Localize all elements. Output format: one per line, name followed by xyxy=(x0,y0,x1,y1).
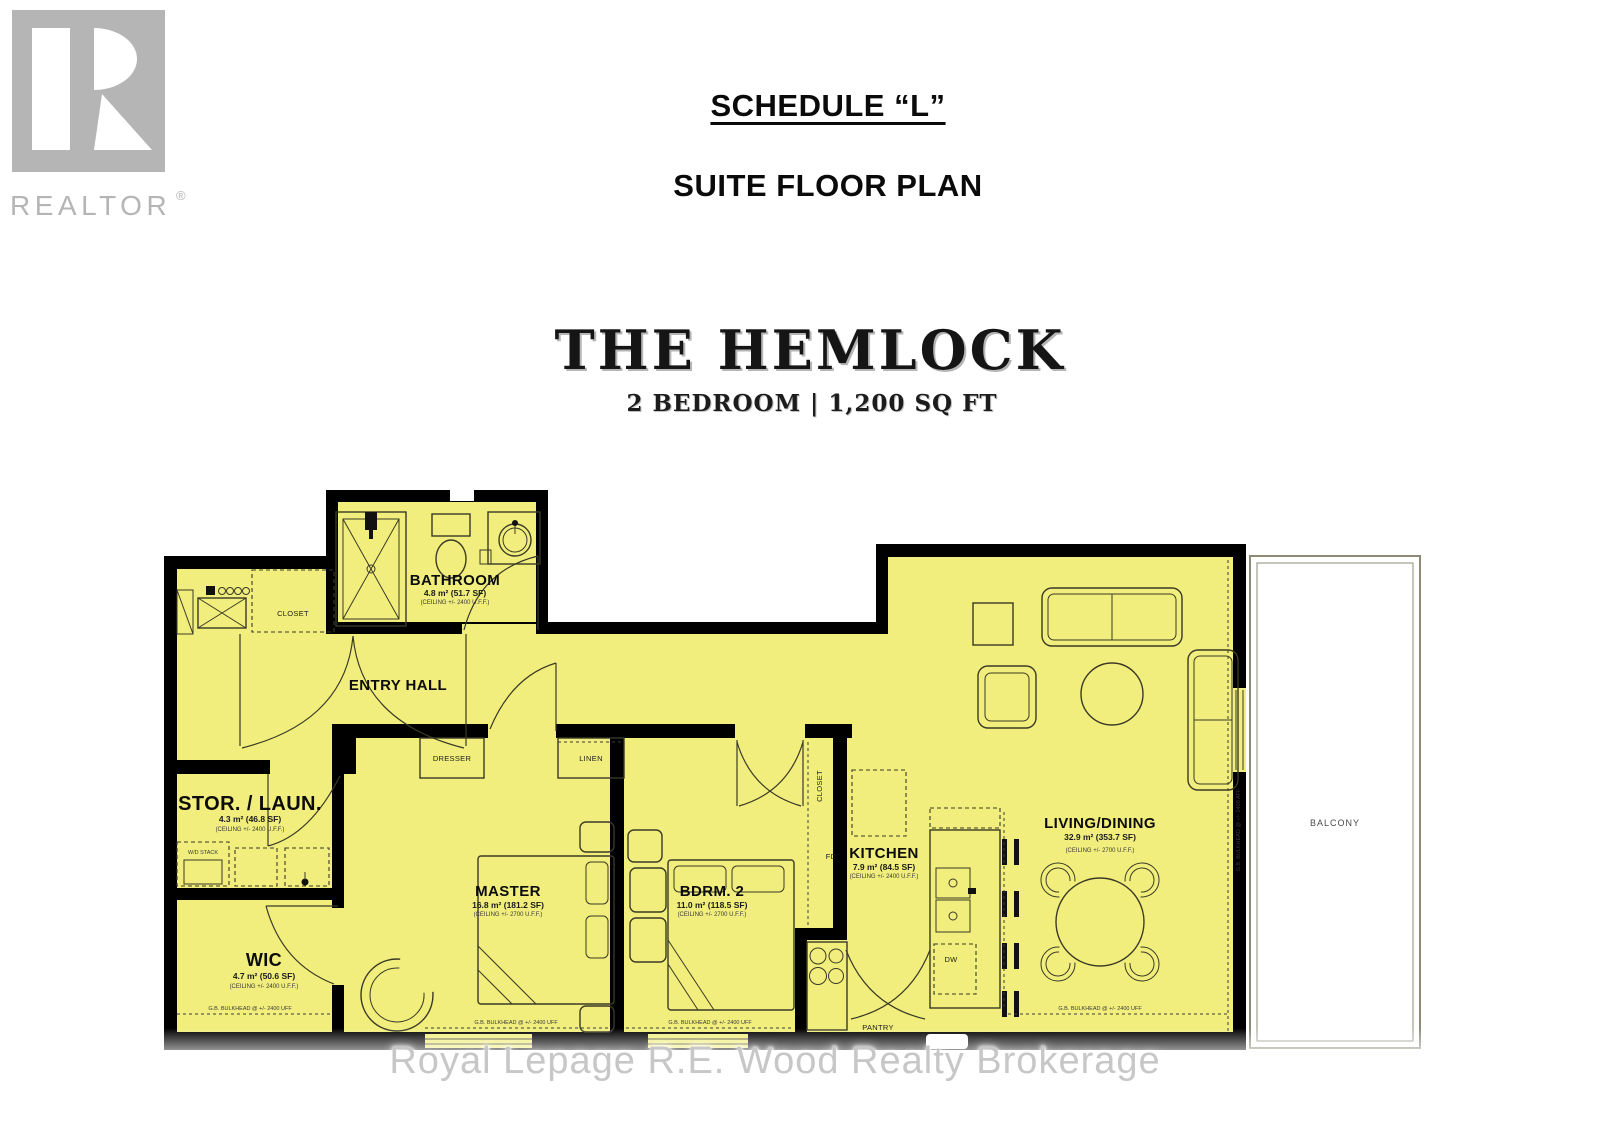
floor-plan: BALCONY xyxy=(0,0,1600,1136)
wall xyxy=(876,544,1246,557)
bulkhead-note: G.B. BULKHEAD @ +/- 2400 UFF xyxy=(668,1020,752,1026)
room-area: 32.9 m² (353.7 SF) xyxy=(1064,832,1136,842)
bulkhead-note-vertical: G.B. BULKHEAD @ +/- 2400 AFF xyxy=(1236,788,1242,871)
room-area: 7.9 m² (84.5 SF) xyxy=(853,862,916,872)
balcony-door-opening xyxy=(1233,688,1246,772)
room-ceiling-note: (CEILING +/- 2700 U.F.F.) xyxy=(1066,848,1135,854)
room-area: 4.3 m² (46.8 SF) xyxy=(219,814,282,824)
fridge-label: FD xyxy=(826,852,837,861)
faucet-icon xyxy=(968,888,976,894)
room-ceiling-note: (CEILING +/- 2700 U.F.F.) xyxy=(678,912,747,918)
room-label-kitchen: KITCHEN 7.9 m² (84.5 SF) (CEILING +/- 24… xyxy=(849,845,918,880)
brokerage-watermark: Royal Lepage R.E. Wood Realty Brokerage xyxy=(389,1040,1160,1083)
faucet-icon xyxy=(512,520,518,526)
room-area: 16.8 m² (181.2 SF) xyxy=(472,900,544,910)
vent-notch xyxy=(450,490,474,501)
wd-stack-label: W/D STACK xyxy=(188,850,218,856)
room-label: BATHROOM xyxy=(410,572,500,589)
door-opening xyxy=(462,624,536,634)
room-label: WIC xyxy=(246,950,282,970)
wall xyxy=(833,738,847,940)
room-label: STOR. / LAUN. xyxy=(178,793,322,815)
room-ceiling-note: (CEILING +/- 2400 U.F.F.) xyxy=(216,827,285,833)
wall xyxy=(876,544,888,634)
room-ceiling-note: (CEILING +/- 2400 U.F.F.) xyxy=(230,984,299,990)
entry-closet-label: CLOSET xyxy=(277,609,309,618)
wall xyxy=(164,888,344,900)
dishwasher-label: DW xyxy=(944,955,958,964)
room-ceiling-note: (CEILING +/- 2400 U.F.F.) xyxy=(850,874,919,880)
room-ceiling-note: (CEILING +/- 2700 U.F.F.) xyxy=(474,912,543,918)
room-area: 11.0 m² (118.5 SF) xyxy=(677,900,748,910)
room-label-master: MASTER 16.8 m² (181.2 SF) (CEILING +/- 2… xyxy=(472,883,544,918)
balcony-outline: BALCONY xyxy=(1250,556,1420,1048)
pantry-label: PANTRY xyxy=(862,1023,894,1032)
room-label: LIVING/DINING xyxy=(1044,815,1156,832)
dresser-label: DRESSER xyxy=(433,754,472,763)
bdrm2-closet-label: CLOSET xyxy=(815,770,824,802)
balcony-label: BALCONY xyxy=(1310,818,1360,828)
wall xyxy=(332,774,344,908)
room-label: MASTER xyxy=(475,883,541,900)
wall xyxy=(326,622,888,634)
wall xyxy=(556,724,735,738)
room-ceiling-note: (CEILING +/- 2400 U.F.F.) xyxy=(421,600,490,606)
wall xyxy=(164,556,332,569)
room-area: 4.8 m² (51.7 SF) xyxy=(424,588,487,598)
bulkhead-note: G.B. BULKHEAD @ +/- 2400 UFF xyxy=(1058,1006,1142,1012)
bulkhead-note: G.B. BULKHEAD @ +/- 2400 UFF xyxy=(208,1006,292,1012)
room-area: 4.7 m² (50.6 SF) xyxy=(233,971,296,981)
room-label: BDRM. 2 xyxy=(680,883,744,900)
wall xyxy=(326,490,548,502)
wall xyxy=(795,928,807,1032)
wall xyxy=(610,738,624,1032)
room-label: KITCHEN xyxy=(849,845,918,862)
wall xyxy=(805,724,852,738)
shower-head-icon xyxy=(369,530,373,539)
wall xyxy=(164,760,270,774)
bulkhead-note: G.B. BULKHEAD @ +/- 2400 UFF xyxy=(474,1020,558,1026)
room-label-entry-hall: ENTRY HALL xyxy=(349,677,447,694)
shower-head-icon xyxy=(365,512,377,530)
wall xyxy=(332,985,344,1032)
wall xyxy=(164,556,177,1050)
room-label-bdrm2: BDRM. 2 11.0 m² (118.5 SF) (CEILING +/- … xyxy=(677,883,748,918)
linen-label: LINEN xyxy=(579,754,603,763)
